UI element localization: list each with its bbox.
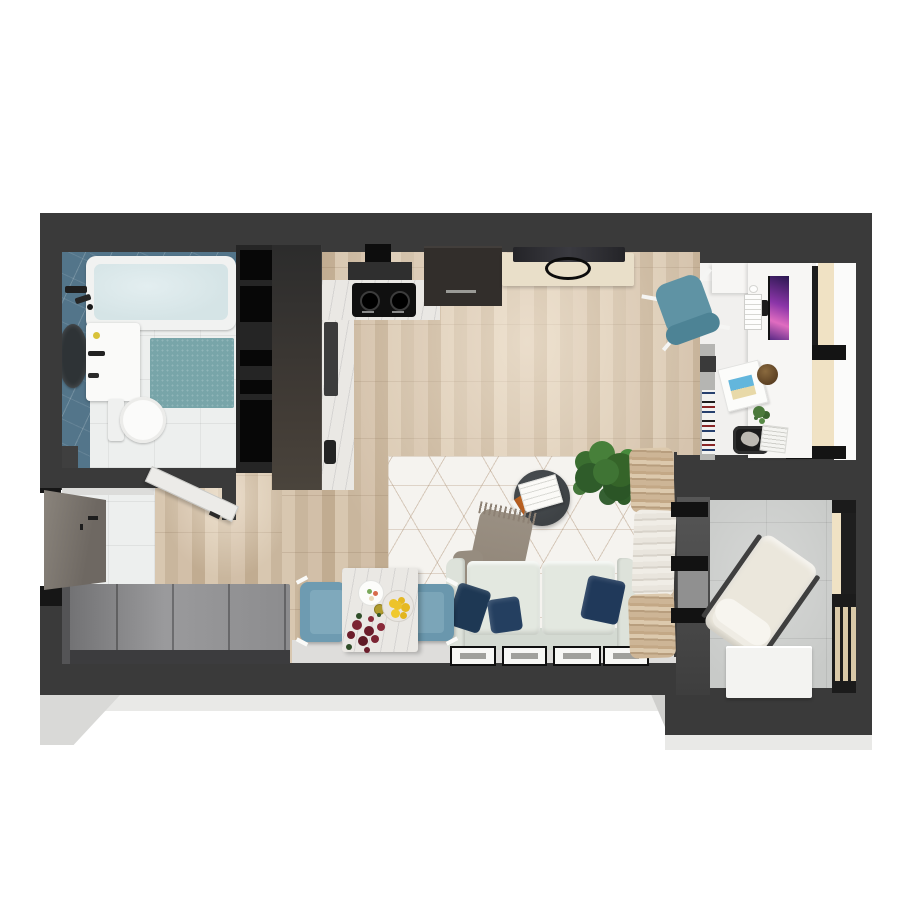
monitor-stand xyxy=(761,300,768,316)
keyboard xyxy=(744,294,762,330)
mirror xyxy=(58,324,88,388)
kitchen-tall-cabinet xyxy=(272,245,322,490)
vanity-sink xyxy=(86,323,140,401)
wall-left-upper xyxy=(40,213,62,490)
burner xyxy=(390,291,410,311)
wall-bottom-main xyxy=(40,663,692,695)
floor-plan-render xyxy=(0,0,900,900)
succulent xyxy=(753,406,765,418)
toilet xyxy=(108,395,168,445)
potted-plant xyxy=(593,459,619,485)
bathtub-water xyxy=(94,264,228,320)
sideboard xyxy=(62,584,290,664)
balcony-window-bar-mid xyxy=(832,594,856,607)
plant-pot xyxy=(757,364,778,385)
entry-door xyxy=(44,490,106,590)
sofa-pillow xyxy=(487,596,523,634)
balcony-window-bar-top xyxy=(832,500,856,513)
picture-frame xyxy=(553,646,601,666)
burner xyxy=(360,291,380,311)
kitchen-cabinet-right xyxy=(424,246,502,306)
faucet xyxy=(88,351,105,356)
hanging-clothes-white xyxy=(632,509,677,596)
shower-fixture xyxy=(63,280,97,314)
balcony-window-pane xyxy=(832,513,841,594)
cooktop xyxy=(352,283,416,317)
wall-top-right xyxy=(700,213,872,263)
cabinet-handle xyxy=(446,290,476,293)
kitchen-sink xyxy=(324,322,338,396)
picture-frame xyxy=(502,646,547,666)
kitchen-faucet xyxy=(324,440,336,464)
wall-bathroom-bottom xyxy=(40,468,236,488)
balcony-window-bar-bottom xyxy=(832,681,856,693)
wall-outer-right xyxy=(856,213,872,735)
entry-door-handle xyxy=(88,516,98,520)
range-hood xyxy=(348,244,412,284)
hanging-clothes-beige xyxy=(628,593,676,659)
book-spines-shelf xyxy=(702,390,715,454)
book-stack xyxy=(760,425,789,454)
bathtub xyxy=(86,256,236,330)
shadow-bottom-band xyxy=(40,695,690,711)
balcony-side-box xyxy=(726,646,812,698)
rack-bracket xyxy=(671,556,708,571)
tulip-bouquet xyxy=(352,620,362,630)
soap-dish xyxy=(93,332,100,339)
ceiling-lamp xyxy=(545,257,591,280)
mouse xyxy=(749,285,758,293)
rack-bracket xyxy=(671,502,708,517)
plate xyxy=(358,580,384,606)
nook-wall-stub xyxy=(700,356,716,372)
wall-left-lower xyxy=(40,598,62,668)
picture-frame xyxy=(450,646,496,666)
hall-wall-face xyxy=(62,487,154,495)
lemon-bowl xyxy=(382,590,414,622)
wall-balcony-top xyxy=(674,455,856,500)
hanging-clothes-beige xyxy=(629,447,675,512)
dining-chair-left xyxy=(300,582,346,642)
balcony-window-frame xyxy=(841,513,856,594)
monitor xyxy=(768,276,789,340)
shadow-balcony-band xyxy=(665,733,872,750)
shadow-bottom-left-wedge xyxy=(40,695,120,745)
balcony-railing xyxy=(832,607,856,683)
window-right-pane-top xyxy=(818,263,834,353)
wall-balcony-left xyxy=(676,497,710,695)
window-right-exterior xyxy=(834,263,856,460)
